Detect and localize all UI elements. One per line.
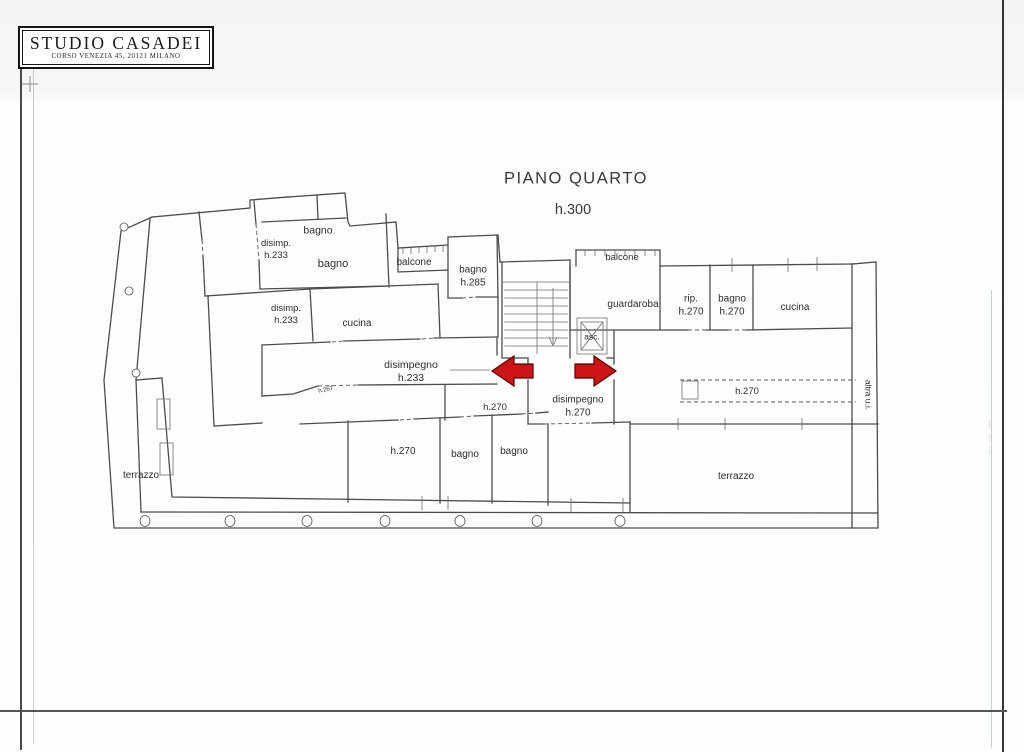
staircase [502,282,570,354]
room-label-guardaroba: guardaroba [607,299,658,312]
room-label-adjacent-unit: altra u.i. [863,380,874,410]
room-label-h270-room: h.270 [390,446,415,459]
room-label-disimpegno-left: disimpegno h.233 [384,359,438,385]
walls-main [104,193,878,528]
room-label-balcone-left: balcone [396,257,431,270]
room-label-terrazzo-right: terrazzo [718,471,754,484]
room-label-disimp-top: disimp. h.233 [261,238,291,262]
room-label-bagno-top-small: bagno [303,224,332,237]
red-arrow-right-icon [575,356,616,386]
room-label-disimpegno-center: disimpegno h.270 [552,395,603,420]
room-label-cucina-right: cucina [781,302,810,315]
room-label-balcone-right: balcone [605,252,638,264]
room-label-bagno-bottom-right: bagno [500,446,528,459]
room-label-h270-landing: h.270 [483,402,507,414]
room-label-bagno-right: bagno h.270 [718,294,746,319]
room-label-bagno-bottom-left: bagno [451,449,479,462]
floor-plan-drawing [0,0,1024,752]
room-label-disimp-mid: disimp. h.233 [271,303,301,327]
direction-arrows [492,356,616,386]
terrace-columns [120,223,625,527]
stair-direction-arrow-icon [549,288,557,346]
room-label-terrazzo-left: terrazzo [123,470,159,483]
red-arrow-left-icon [492,356,533,386]
room-label-bagno-top-large: bagno [318,258,349,272]
room-label-ripostiglio: rip. h.270 [678,294,703,319]
scanned-floor-plan-page: STUDIO CASADEI CORSO VENEZIA 45, 20121 M… [0,0,1024,752]
room-label-h270-strip: h.270 [735,386,759,398]
room-label-elevator: asc. [584,332,600,343]
crosshair-mark [22,76,38,92]
room-label-bagno-h285: bagno h.285 [459,265,487,290]
plan-details [120,223,990,527]
room-label-cucina-left: cucina [343,318,372,331]
